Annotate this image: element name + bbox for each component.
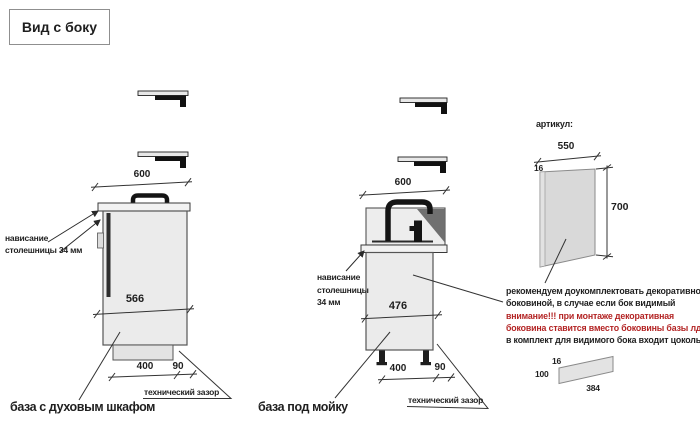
dim-600-label: 600	[389, 177, 417, 188]
sink-cabinet-name: база под мойку	[258, 401, 348, 415]
faucet-lever	[410, 226, 415, 231]
overhang-arrow	[48, 211, 98, 242]
page-title: Вид с боку	[22, 19, 97, 35]
overhang-label-line1: нависание	[317, 273, 360, 282]
dim-400-label: 400	[131, 361, 159, 372]
panel-note: рекомендуем доукомплектовать декоративно…	[506, 285, 700, 346]
dim-line-600	[91, 178, 192, 191]
overhang-arrow	[346, 251, 364, 271]
plinth-strip-drawing	[559, 357, 613, 384]
dim-476-label: 476	[383, 300, 413, 312]
dim-550-label: 550	[551, 141, 581, 152]
overhang-label-line3: 34 мм	[317, 298, 340, 307]
tech-gap-label: технический зазор	[408, 396, 483, 405]
drawing-canvas	[0, 0, 700, 428]
note-line-3: в комплект для видимого бока входит цоко…	[506, 334, 700, 346]
side-panel-drawing	[534, 152, 613, 283]
oven-handle-side	[98, 233, 104, 248]
dim-16-label: 16	[534, 164, 543, 173]
overhang-label-line1: нависание	[5, 234, 48, 243]
note-line-1: рекомендуем доукомплектовать декоративно…	[506, 285, 700, 297]
dim-400-label: 400	[384, 363, 412, 374]
view-title-box: Вид с боку	[9, 9, 110, 45]
countertop	[361, 245, 447, 253]
countertop-handle	[133, 196, 167, 204]
plinth	[113, 345, 173, 360]
sink-cabinet-drawing	[335, 186, 503, 408]
dim-line-400-90	[378, 373, 455, 383]
dim-line-550	[534, 152, 601, 166]
oven-door-edge	[107, 213, 111, 297]
overhang-label-line2: столешницы 34 мм	[5, 246, 82, 255]
cabinet-body	[103, 211, 187, 345]
tech-gap-label: технический зазор	[144, 388, 219, 397]
dim-600-label: 600	[127, 169, 157, 180]
side-view-drawing: Вид с боку 600 566 400 90 технический за…	[0, 0, 700, 428]
faucet-mixer	[414, 221, 422, 243]
wall-bracket-icon	[398, 157, 447, 173]
plinth-dim-100-label: 100	[535, 370, 549, 379]
dim-700-label: 700	[611, 202, 629, 214]
wall-bracket-icon	[138, 152, 188, 168]
countertop	[98, 203, 190, 211]
cabinet-name-leader	[79, 332, 120, 400]
wall-bracket-icon	[400, 98, 447, 114]
note-warning-line-1: внимание!!! при монтаже декоративная	[506, 310, 700, 322]
note-line-2: боковиной, в случае если бок видимый	[506, 297, 700, 309]
plinth-strip-face	[559, 357, 613, 384]
panel-edge-face	[540, 172, 545, 267]
oven-cabinet-name: база с духовым шкафом	[10, 401, 155, 415]
plinth-dim-16-label: 16	[552, 357, 561, 366]
dim-566-label: 566	[120, 293, 150, 305]
plinth-dim-384-label: 384	[578, 384, 608, 393]
dim-90-label: 90	[430, 362, 450, 373]
article-label: артикул:	[536, 120, 573, 130]
overhang-label-line2: столешницы	[317, 286, 369, 295]
panel-face	[540, 169, 595, 267]
wall-bracket-icon	[138, 91, 188, 107]
note-warning-line-2: боковина ставится вместо боковины базы л…	[506, 322, 700, 334]
dim-90-label: 90	[168, 361, 188, 372]
dim-line-600	[359, 186, 450, 199]
